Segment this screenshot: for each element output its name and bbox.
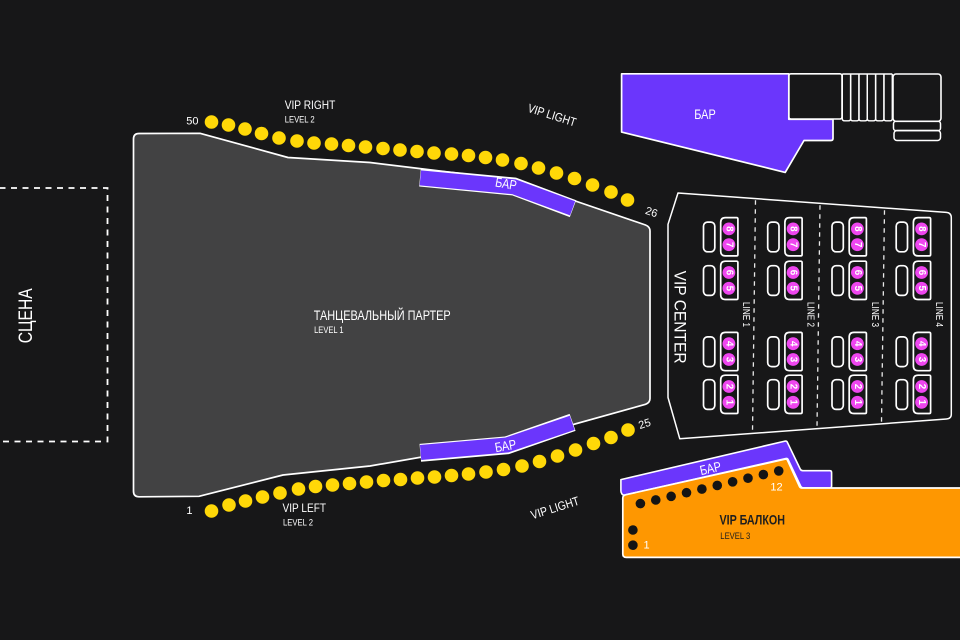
svg-text:2: 2	[723, 384, 734, 390]
svg-text:LEVEL 2: LEVEL 2	[285, 114, 315, 124]
svg-text:4: 4	[852, 341, 863, 347]
svg-text:ТАНЦЕВАЛЬНЫЙ ПАРТЕР: ТАНЦЕВАЛЬНЫЙ ПАРТЕР	[314, 308, 451, 323]
svg-text:LINE 2: LINE 2	[805, 302, 816, 327]
svg-text:1: 1	[916, 400, 927, 406]
svg-text:7: 7	[852, 242, 863, 248]
svg-text:5: 5	[916, 286, 927, 292]
svg-text:6: 6	[916, 270, 927, 276]
svg-text:4: 4	[788, 341, 799, 347]
svg-text:3: 3	[723, 357, 734, 363]
svg-text:8: 8	[916, 226, 927, 232]
svg-text:6: 6	[852, 270, 863, 276]
svg-text:5: 5	[723, 286, 734, 292]
svg-text:LINE 3: LINE 3	[869, 302, 880, 327]
svg-text:LEVEL 3: LEVEL 3	[720, 531, 750, 541]
svg-text:1: 1	[186, 505, 192, 517]
svg-text:VIP БАЛКОН: VIP БАЛКОН	[720, 512, 786, 527]
svg-text:СЦЕНА: СЦЕНА	[15, 288, 37, 343]
svg-text:12: 12	[770, 481, 782, 493]
svg-text:VIP RIGHT: VIP RIGHT	[285, 98, 336, 112]
svg-text:7: 7	[916, 242, 927, 248]
svg-text:4: 4	[916, 341, 927, 347]
svg-text:3: 3	[916, 357, 927, 363]
svg-text:50: 50	[186, 115, 198, 127]
svg-text:4: 4	[723, 341, 734, 347]
svg-text:5: 5	[852, 286, 863, 292]
svg-text:6: 6	[723, 270, 734, 276]
svg-text:1: 1	[852, 400, 863, 406]
svg-text:7: 7	[723, 242, 734, 248]
svg-text:3: 3	[788, 357, 799, 363]
svg-text:VIP CENTER: VIP CENTER	[671, 271, 689, 364]
svg-text:2: 2	[852, 384, 863, 390]
svg-text:LINE 1: LINE 1	[740, 302, 751, 327]
svg-text:1: 1	[723, 400, 734, 406]
svg-text:2: 2	[916, 384, 927, 390]
svg-text:LEVEL 2: LEVEL 2	[283, 517, 313, 527]
svg-text:6: 6	[788, 270, 799, 276]
svg-text:8: 8	[788, 226, 799, 232]
svg-text:2: 2	[788, 384, 799, 390]
svg-text:1: 1	[644, 539, 650, 551]
svg-text:1: 1	[788, 400, 799, 406]
svg-text:БАР: БАР	[694, 106, 716, 122]
svg-text:3: 3	[852, 357, 863, 363]
svg-text:VIP LEFT: VIP LEFT	[283, 501, 327, 515]
svg-text:LEVEL 1: LEVEL 1	[314, 325, 344, 335]
svg-text:LINE 4: LINE 4	[933, 302, 944, 328]
svg-text:5: 5	[788, 286, 799, 292]
svg-text:7: 7	[788, 242, 799, 248]
svg-text:8: 8	[852, 226, 863, 232]
svg-text:8: 8	[723, 226, 734, 232]
